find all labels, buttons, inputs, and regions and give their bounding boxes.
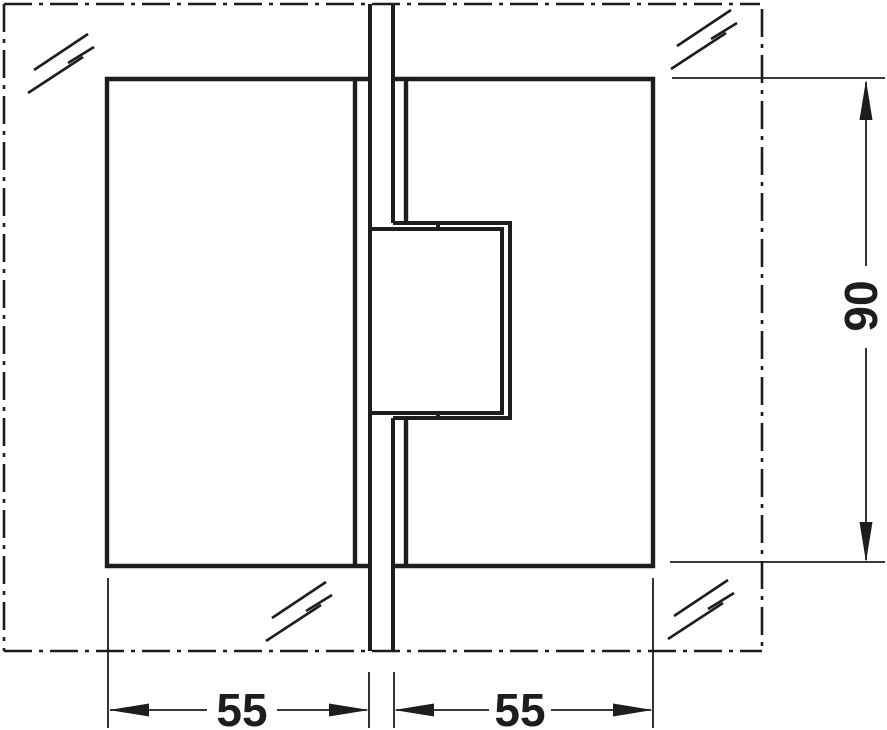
dimension-value-right-width: 55 bbox=[494, 684, 545, 730]
dimension-height: 90 bbox=[670, 78, 887, 562]
hatch-line bbox=[28, 57, 83, 93]
left-mounting-plate bbox=[107, 79, 370, 566]
dimension-value-height: 90 bbox=[835, 280, 887, 331]
hatch-line bbox=[711, 23, 737, 39]
hatch-line bbox=[668, 603, 723, 639]
left-plate-outline bbox=[107, 79, 370, 566]
glass-hatch-icon bbox=[668, 580, 734, 639]
arrowhead-right bbox=[613, 704, 653, 717]
arrowhead-left bbox=[109, 704, 149, 717]
right-plate-outline bbox=[393, 79, 653, 566]
glass-hatch-icon bbox=[28, 34, 94, 93]
arrowhead-up bbox=[860, 80, 873, 120]
dimension-width-left: 55 bbox=[108, 578, 369, 730]
hatch-line bbox=[266, 605, 321, 641]
knuckle-outer-outline bbox=[393, 223, 510, 418]
glass-hatch-icon bbox=[266, 582, 332, 641]
right-mounting-plate bbox=[393, 79, 653, 566]
centerline-border bbox=[4, 4, 762, 651]
hatch-line bbox=[708, 593, 734, 609]
knuckle-inner-outline bbox=[371, 229, 502, 413]
hinge-technical-drawing-canvas: 55 55 90 bbox=[0, 0, 887, 730]
arrowhead-down bbox=[860, 522, 873, 562]
glass-door-hinge-drawing: 55 55 90 bbox=[0, 0, 887, 730]
hinge-knuckle bbox=[371, 223, 510, 418]
dimension-value-left-width: 55 bbox=[216, 684, 267, 730]
hatch-line bbox=[272, 582, 326, 618]
hatch-line bbox=[34, 34, 88, 70]
hatch-line bbox=[671, 33, 726, 69]
arrowhead-right bbox=[329, 704, 369, 717]
hatch-line bbox=[674, 580, 728, 616]
glass-hatch-icon bbox=[671, 10, 737, 69]
glass-panel-edges bbox=[370, 4, 393, 651]
hatch-line bbox=[306, 595, 332, 611]
hatch-line bbox=[68, 47, 94, 63]
dimension-width-right: 55 bbox=[394, 578, 653, 730]
arrowhead-left bbox=[394, 704, 434, 717]
hatch-line bbox=[677, 10, 731, 46]
